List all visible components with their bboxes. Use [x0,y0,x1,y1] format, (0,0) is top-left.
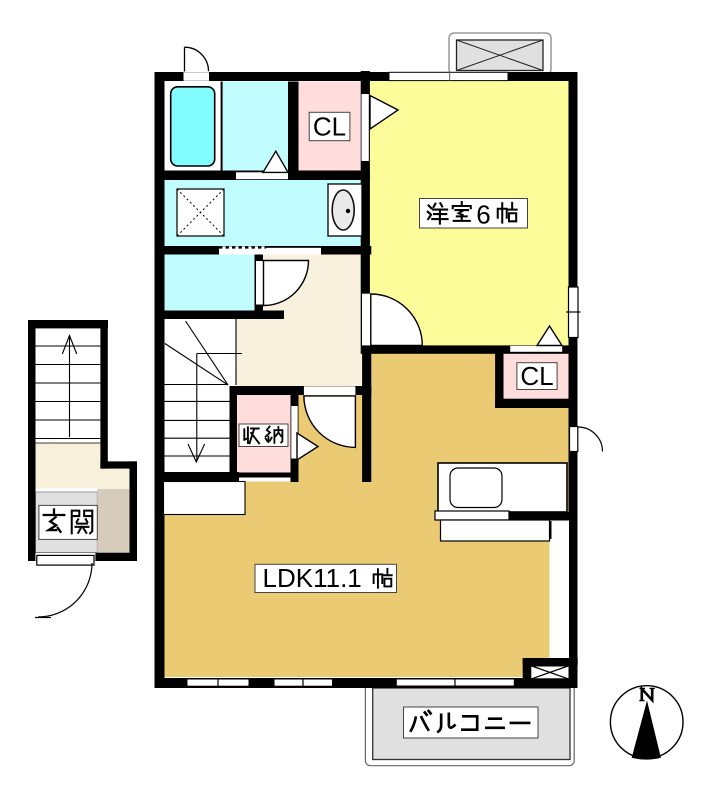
svg-text:LDK11.1: LDK11.1 [263,563,362,593]
svg-text:CL: CL [520,361,553,391]
svg-text:6: 6 [476,200,490,230]
svg-text:CL: CL [313,112,346,142]
